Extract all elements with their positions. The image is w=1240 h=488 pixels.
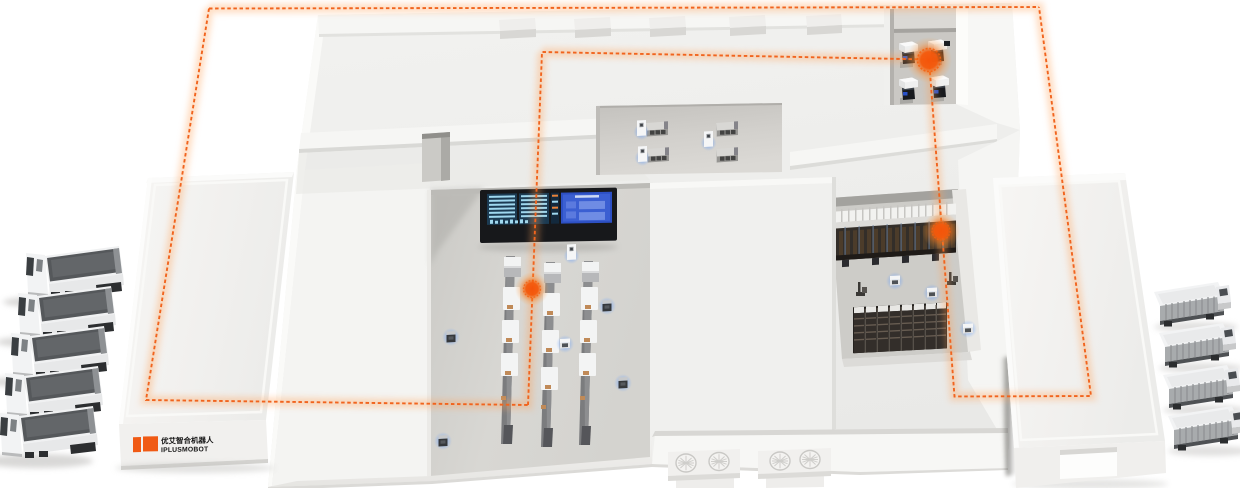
svg-text:优艾智合机器人: 优艾智合机器人 — [161, 435, 214, 446]
svg-text:IPLUSMOBOT: IPLUSMOBOT — [161, 446, 209, 454]
